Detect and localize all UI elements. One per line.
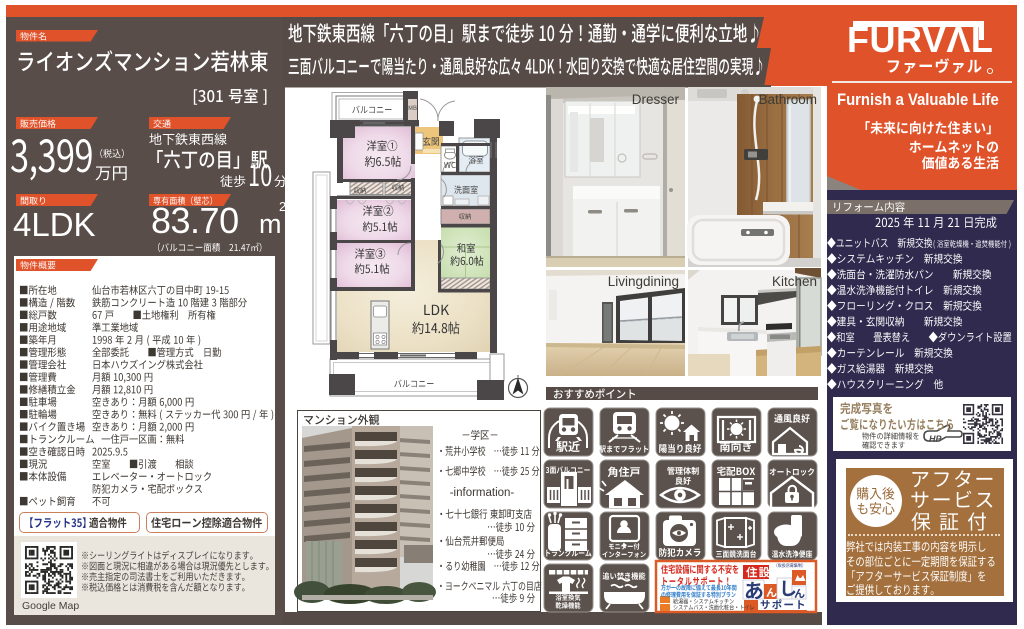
svg-text:HP: HP (929, 434, 942, 444)
